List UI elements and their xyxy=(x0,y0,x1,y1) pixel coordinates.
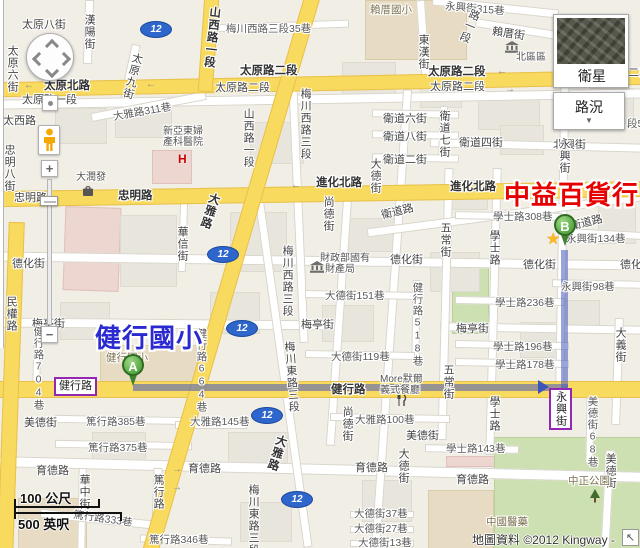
street-label: 漢陽街 xyxy=(83,14,95,50)
street-label: 梅川西路三段 xyxy=(299,88,311,160)
street-label: 梅亭街 xyxy=(456,323,489,335)
street-label: 學士路196巷 xyxy=(493,342,553,354)
street-label: 衛道七街 xyxy=(438,110,450,158)
street-label: 德化街 xyxy=(620,259,640,271)
route-line xyxy=(561,250,568,390)
street-label: 永興街98巷 xyxy=(561,282,615,294)
street-label: 篤行路375巷 xyxy=(88,443,148,455)
street-label: 篤行路346巷 xyxy=(149,535,209,547)
zoom-slider-handle[interactable] xyxy=(40,196,58,206)
street-label: 大德街119巷 xyxy=(331,352,390,364)
street-label: 太原路二段 xyxy=(240,65,298,78)
oneway-arrow-icon: ← xyxy=(24,80,34,91)
map-type-satellite-button[interactable]: 衛星 xyxy=(553,14,629,88)
street-label: 育德路 xyxy=(36,465,69,477)
street-label: 大德街13巷 xyxy=(358,538,412,548)
pan-down-arrow-icon[interactable] xyxy=(45,64,59,78)
highlighted-street-label: 永興街 xyxy=(549,388,572,430)
street-label: 大雅路145巷 xyxy=(190,417,250,429)
street-label: 衛道二街 xyxy=(383,154,427,166)
street-label: 篤行路385巷 xyxy=(86,417,146,429)
street-label: 篤行路 xyxy=(152,474,164,510)
street-label: 美德街 xyxy=(406,430,439,442)
street-label: 山西路一段 xyxy=(242,108,254,168)
restaurant-icon xyxy=(396,394,407,412)
street-label: 梅川西路三段35巷 xyxy=(226,24,311,36)
street-label: 產科醫院 xyxy=(163,137,203,148)
scale-bar xyxy=(120,512,122,521)
street-label: 梅川東路三段 xyxy=(247,484,259,548)
street-label: 學士路308巷 xyxy=(493,212,553,224)
street-label: 段5 xyxy=(627,119,640,131)
street-label: 衛道六街 xyxy=(383,113,427,125)
street-label: 新亞東婦 xyxy=(163,126,203,137)
satellite-label: 衛星 xyxy=(554,66,630,86)
street-label: 永興街 xyxy=(558,138,570,174)
street-label: 育德路 xyxy=(456,474,489,486)
street-label: 北區區 xyxy=(516,52,546,63)
street-label: 德化街 xyxy=(523,259,556,271)
scale-imperial-label: 500 英呎 xyxy=(18,514,69,533)
block xyxy=(120,215,177,287)
street-label: 五常街 xyxy=(442,364,454,400)
hospital-icon: H xyxy=(178,152,187,166)
route-12-shield: 12 xyxy=(226,320,258,337)
route-12-shield: 12 xyxy=(251,407,283,424)
street-label: 衛道八街 xyxy=(383,131,427,143)
street-label: 學士路236巷 xyxy=(495,298,555,310)
street-label: 健行路 xyxy=(331,384,366,397)
highlighted-street-label: 健行路 xyxy=(54,377,97,396)
scale-metric-label: 100 公尺 xyxy=(20,488,71,507)
tree-icon xyxy=(589,489,601,508)
street-label: 大德街151巷 xyxy=(325,291,385,303)
route-12-shield: 12 xyxy=(207,246,239,263)
route-direction-arrow-icon xyxy=(538,380,549,394)
street-label: 進化北路 xyxy=(450,181,496,194)
street-label: 民權路 xyxy=(5,296,17,332)
street-label: 太原路二段 xyxy=(430,81,485,93)
oneway-arrow-icon: → xyxy=(505,84,515,95)
street-label: 健行國小 xyxy=(95,324,203,353)
street-label: 美德街 xyxy=(24,417,57,429)
street-label: 中國醫藥 xyxy=(486,517,528,529)
street-label: 大德街 xyxy=(369,158,381,194)
map-attribution: 地圖資料 ©2012 Kingway - xyxy=(472,531,615,548)
street-label: 大德街27巷 xyxy=(354,524,408,536)
pan-control[interactable] xyxy=(26,33,74,81)
street-label: 東漢街 xyxy=(417,34,429,70)
satellite-thumbnail xyxy=(557,18,625,64)
street-label: 德化街 xyxy=(390,254,423,266)
chevron-down-icon: ▼ xyxy=(554,117,624,125)
street-label: 太原北路 xyxy=(44,80,90,93)
building-area xyxy=(63,206,122,292)
street-label: 學士路 xyxy=(488,230,500,266)
scale-bar xyxy=(14,506,100,508)
street-label: 梅亭街 xyxy=(301,319,334,331)
street-label: 五常街 xyxy=(439,222,451,258)
pan-left-arrow-icon[interactable] xyxy=(32,52,46,66)
street-label: 衛道四街 xyxy=(459,137,503,149)
street-label: 大雅路100巷 xyxy=(355,415,415,427)
street-label: 永興街134巷 xyxy=(566,234,626,246)
street-label: 學士路143巷 xyxy=(446,444,506,456)
route-12-shield: 12 xyxy=(140,21,172,38)
street-label: 財產局 xyxy=(325,264,355,275)
scale-bar xyxy=(14,499,16,519)
scale-control: 100 公尺 500 英呎 xyxy=(12,486,142,528)
zoom-in-button[interactable]: + xyxy=(41,160,58,177)
street-label: 太西路 xyxy=(3,115,36,127)
traffic-button[interactable]: 路況 ▼ xyxy=(553,92,625,130)
street-label: 尚德街 xyxy=(322,196,334,232)
center-dot-icon xyxy=(48,101,53,106)
left-panel-edge xyxy=(0,0,4,348)
street-label: 美德街68巷 xyxy=(586,396,598,468)
route-12-shield: 12 xyxy=(281,491,313,508)
street-label: 賴厝國小 xyxy=(370,5,412,17)
marker-a[interactable]: A xyxy=(122,354,144,376)
oneway-arrow-icon: → xyxy=(172,464,182,475)
street-label: 義式餐廳 xyxy=(380,385,420,396)
street-label: 育德路 xyxy=(355,462,388,474)
oneway-arrow-icon: ← xyxy=(497,66,507,77)
street-label: 德化街 xyxy=(12,258,45,270)
zoom-out-button[interactable]: − xyxy=(41,326,58,343)
pegman-button[interactable] xyxy=(38,125,60,155)
oneway-arrow-icon: ← xyxy=(291,180,301,191)
oneway-arrow-icon: → xyxy=(172,482,182,493)
street-label: 太原八街 xyxy=(22,19,66,31)
street-label: 中正公園 xyxy=(568,476,610,488)
street-label: More默爾 xyxy=(380,374,423,385)
traffic-label: 路況 xyxy=(554,97,624,117)
marker-b[interactable]: B xyxy=(554,214,576,236)
pan-right-arrow-icon[interactable] xyxy=(57,52,71,66)
street-label: 中益百貨行 xyxy=(504,181,639,210)
street-label: 尚德街 xyxy=(341,406,353,442)
street-label: 太原六街 xyxy=(6,45,18,93)
street-label: 進化北路 xyxy=(316,177,362,190)
scale-bar xyxy=(98,499,100,508)
street-label: 太原路二段 xyxy=(428,66,486,79)
shopping-bag-icon xyxy=(82,184,94,202)
street-label: 忠明八街 xyxy=(3,144,15,192)
street-label: 大義街 xyxy=(614,327,626,363)
street-label: 健行路518巷 xyxy=(411,282,423,367)
report-arrow-button[interactable]: ↖ xyxy=(622,529,639,546)
street-label: 太原路二段 xyxy=(215,82,270,94)
street-label: 學士路178巷 xyxy=(495,360,555,372)
street-label: 學士路 xyxy=(488,396,500,432)
pan-up-arrow-icon[interactable] xyxy=(45,39,59,53)
street-label: 大潤發 xyxy=(76,172,106,183)
street-label: 育德路 xyxy=(188,463,221,475)
oneway-arrow-icon: ← xyxy=(146,79,156,90)
pegman-icon xyxy=(43,128,56,152)
street-label: 忠明路 xyxy=(118,190,153,203)
recenter-button[interactable] xyxy=(42,95,58,111)
street-label: 大德街37巷 xyxy=(354,509,408,521)
street-label: 梅川西路三段 xyxy=(281,245,293,317)
street-label: 財政部國有 xyxy=(320,253,370,264)
street-label: 華信街 xyxy=(176,226,188,262)
street-label: 大德街 xyxy=(397,448,409,484)
map-canvas[interactable]: 1212121212太原八街漢陽街太原六街太原北路太原路一段太原九街太西路大雅路… xyxy=(0,0,640,548)
